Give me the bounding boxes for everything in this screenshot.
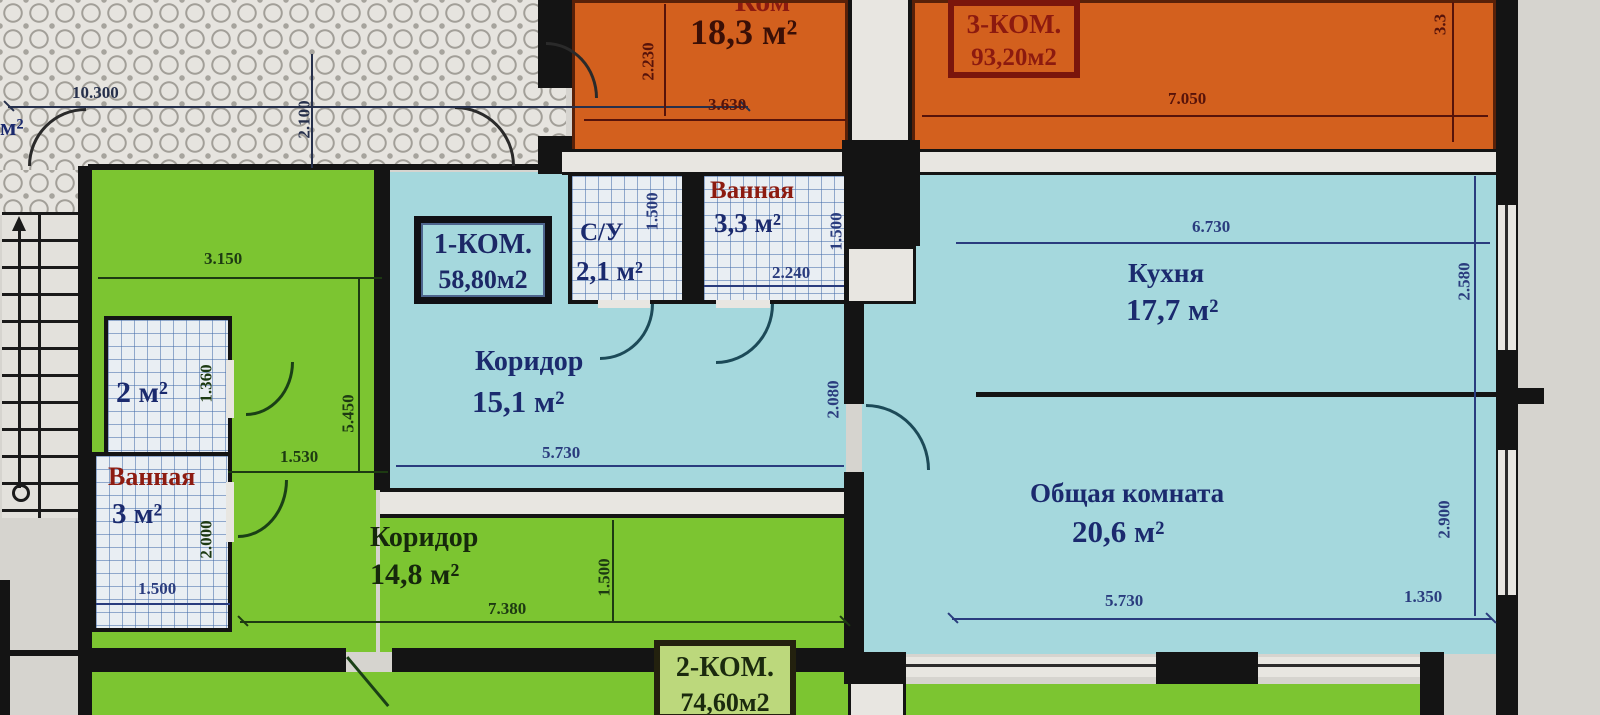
- window-kitchen: [1498, 205, 1516, 350]
- dim-line-33: [1452, 2, 1454, 142]
- dim-hall1-5730: 5.730: [542, 444, 580, 461]
- apt3-badge-line1: 3-КОМ.: [954, 9, 1074, 40]
- dim-line-2900: [1474, 176, 1476, 616]
- dim-3630: 3.630: [708, 96, 746, 113]
- window-bottom-1: [906, 657, 1156, 677]
- dim-kit-6730: 6.730: [1192, 218, 1230, 235]
- bath2-name: Ванная: [108, 464, 195, 490]
- wc-name: С/У: [580, 220, 623, 245]
- dim-hall2-7380: 7.380: [488, 600, 526, 617]
- apt2-badge-line1: 2-КОМ.: [660, 652, 790, 684]
- apt1-badge-line2: 58,80м2: [421, 265, 545, 295]
- kitchen-name: Кухня: [1128, 260, 1204, 287]
- dim-hall2-1500: 1.500: [596, 546, 613, 610]
- edge-label-fragment: м²: [0, 116, 24, 140]
- dim-liv-5730: 5.730: [1105, 592, 1143, 609]
- wall-left-bottom-line: [6, 650, 92, 656]
- wall-green-bottom-1: [92, 648, 346, 672]
- dim-grn-1360: 1.360: [198, 352, 215, 416]
- living-name: Общая комната: [1030, 480, 1224, 507]
- dim-33: 3.3: [1432, 0, 1449, 57]
- hall2-area: 14,8 м²: [370, 560, 459, 590]
- landing-tile-strip: [0, 170, 80, 215]
- apt1-living-area: [862, 395, 1496, 654]
- dim-line-10300: [8, 106, 748, 108]
- wall-right-outer: [1496, 0, 1518, 715]
- dim-line-1530: [228, 471, 388, 473]
- dim-line-7380: [240, 621, 846, 623]
- wall-left-bottom-vertical: [0, 580, 10, 715]
- window-bottom-2: [1258, 657, 1420, 677]
- dim-line-5450: [358, 278, 360, 472]
- stair-divider: [38, 212, 41, 518]
- dim-line-5730-hall: [396, 465, 844, 467]
- apt3-badge-line2: 93,20м2: [954, 44, 1074, 72]
- wall-bottom-block-1: [844, 652, 906, 684]
- bath1-name: Ванная: [710, 178, 794, 203]
- dim-grn-1530: 1.530: [280, 448, 318, 465]
- wall-wc-bath-divider: [686, 172, 700, 304]
- hall2-name: Коридор: [370, 524, 478, 552]
- wc-area: 2,1 м²: [576, 258, 643, 285]
- wall-duct: [846, 246, 916, 304]
- wall-living-left-lower: [844, 472, 864, 654]
- bath2-area: 3 м²: [112, 500, 162, 529]
- wall-kitchen-living-divider: [976, 392, 1496, 397]
- bath-apt2-door-threshold: [226, 482, 234, 542]
- apt2-badge-line2: 74,60м2: [660, 688, 790, 715]
- dim-liv-2900: 2.900: [1436, 488, 1453, 552]
- staircase: [2, 212, 78, 518]
- dim-line-2240: [704, 285, 844, 287]
- dim-2100: 2.100: [296, 88, 313, 152]
- wall-corridor-bottom-band: [380, 488, 850, 518]
- dim-7050: 7.050: [1168, 90, 1206, 107]
- dim-grn-5450: 5.450: [340, 382, 357, 446]
- stair-arrow-origin-icon: [12, 484, 30, 502]
- wall-bottom-right-vertical: [1420, 652, 1444, 715]
- apt1-badge: 1-КОМ. 58,80м2: [414, 216, 552, 304]
- wall-right-stub: [1518, 388, 1544, 404]
- kitchen-area: 17,7 м²: [1126, 294, 1218, 325]
- apt3-partition-gap: [848, 0, 912, 152]
- dim-line-2230: [664, 4, 666, 116]
- dim-line-6730: [956, 242, 1490, 244]
- dim-bath-2240: 2.240: [772, 264, 810, 281]
- dim-2230: 2.230: [640, 30, 657, 94]
- dim-grn-1500: 1.500: [138, 580, 176, 597]
- wall-bottom-gap-strip: [848, 684, 906, 715]
- hall1-area: 15,1 м²: [472, 386, 564, 417]
- dim-grn-3150: 3.150: [204, 250, 242, 267]
- apt2-badge: 2-КОМ. 74,60м2: [654, 640, 796, 715]
- dim-line-1500-bath: [96, 603, 230, 605]
- dim-line-5730-living: [952, 618, 1492, 620]
- wall-corridor-left: [374, 166, 390, 490]
- dim-hall1-2080: 2.080: [825, 368, 842, 432]
- wall-bottom-block-2: [1156, 652, 1258, 684]
- apt2-lower-right-room: [904, 684, 1422, 715]
- living-area: 20,6 м²: [1072, 516, 1164, 547]
- dim-grn-2000: 2.000: [198, 508, 215, 572]
- bath1-area: 3,3 м²: [714, 210, 781, 237]
- hall1-name: Коридор: [475, 348, 583, 376]
- closet-area: 2 м²: [116, 378, 168, 408]
- floor-plan: Ком: [0, 0, 1600, 715]
- dim-kit-2580: 2.580: [1456, 250, 1473, 314]
- wall-left-outer: [78, 166, 92, 715]
- apt1-badge-line1: 1-КОМ.: [421, 229, 545, 261]
- stair-arrow-head-icon: [12, 216, 26, 231]
- window-living: [1498, 450, 1516, 595]
- stair-arrow-line: [18, 228, 21, 488]
- dim-bath-1500: 1.500: [828, 200, 845, 264]
- dim-line-3630: [584, 119, 846, 121]
- dim-liv-1350: 1.350: [1404, 588, 1442, 605]
- apt3-badge: 3-КОМ. 93,20м2: [948, 0, 1080, 78]
- closet-door-threshold: [226, 360, 234, 418]
- wall-green-bottom-3: [796, 648, 848, 672]
- wall-living-left-upper: [844, 304, 864, 404]
- dim-line-3150: [98, 277, 382, 279]
- dim-line-7050: [922, 115, 1488, 117]
- dim-wc-1500: 1.500: [644, 180, 661, 244]
- wall-chunk-center: [842, 140, 920, 246]
- room-top-area: 18,3 м²: [690, 14, 797, 50]
- dim-10300: 10.300: [72, 84, 119, 101]
